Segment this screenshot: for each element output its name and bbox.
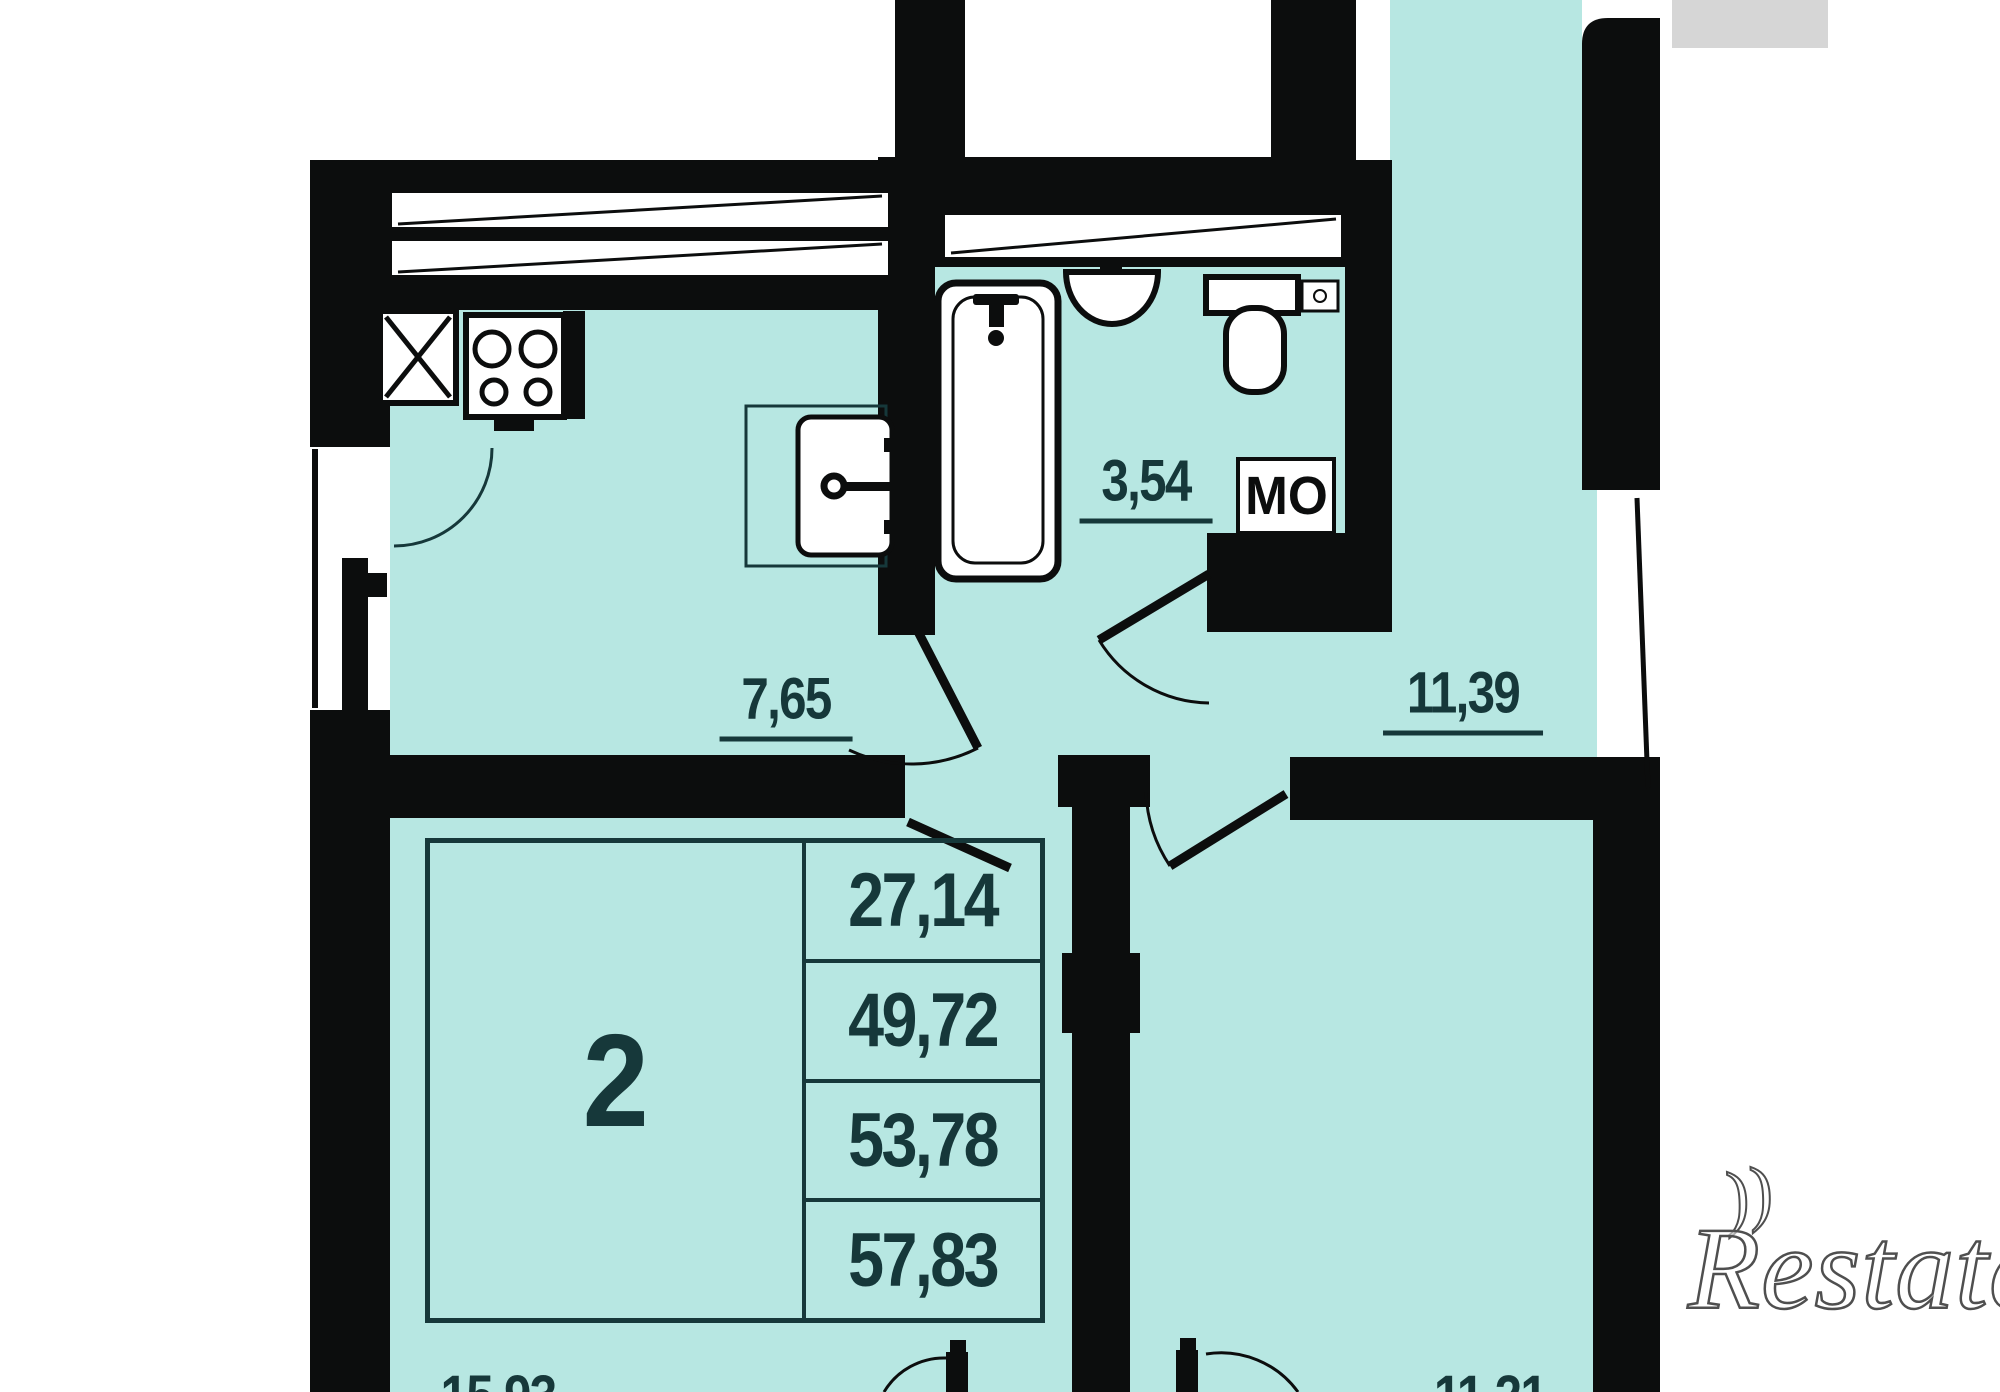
wall-hall-bedroom-divider	[1290, 757, 1660, 820]
wall-right-lower	[1593, 820, 1660, 1392]
kitchen-area-label: 7,65	[720, 671, 853, 742]
wall-bathroom-bottom	[1207, 533, 1392, 632]
washer-outline	[1302, 281, 1338, 311]
door-hinge	[950, 1340, 966, 1352]
bathroom-window-band	[945, 215, 1341, 257]
stove-outline	[466, 315, 564, 417]
wall-stub-a	[895, 0, 965, 162]
burner	[521, 332, 555, 366]
living-room-area-value: 15,93	[441, 1368, 556, 1392]
common-area-box: МО	[1236, 457, 1336, 535]
common-area-label: МО	[1245, 465, 1328, 527]
living-room-area-label: 15,93	[430, 1368, 565, 1392]
entry-door	[1637, 498, 1648, 788]
hallway-area-label: 11,39	[1383, 665, 1543, 736]
tub-drain	[988, 330, 1004, 346]
toilet-bowl	[1226, 308, 1284, 392]
stamp-area-row: 27,14	[806, 843, 1040, 963]
sink-tick	[884, 438, 893, 452]
stamp-area-value: 57,83	[849, 1217, 998, 1304]
stamp-area-row: 49,72	[806, 963, 1040, 1083]
wall-central-mid	[1062, 953, 1140, 1033]
door-leaf	[342, 558, 368, 710]
burner	[482, 380, 506, 404]
stamp-room-count-cell: 2	[430, 843, 806, 1318]
refrigerator-symbol	[380, 311, 456, 403]
wall-top-kitchen	[310, 160, 935, 310]
wall-stub-b	[1271, 0, 1356, 162]
hallway-area-value: 11,39	[1407, 665, 1519, 723]
door-leaf	[946, 1352, 968, 1392]
kitchen-sink-symbol	[798, 417, 893, 555]
neighbor-structure	[1672, 0, 1828, 48]
wall-central-cap	[1058, 755, 1150, 807]
door-handle	[365, 573, 387, 597]
kitchen-area-value: 7,65	[741, 671, 830, 729]
wall-kitchen-living-divider	[310, 755, 905, 818]
stove-tab	[494, 419, 534, 431]
wall-central-shaft	[1072, 805, 1130, 1392]
bathroom-area-label: 3,54	[1080, 453, 1213, 524]
washer-symbol	[1302, 281, 1338, 311]
tub-faucet-bar	[973, 294, 1019, 305]
stamp-area-value: 53,78	[849, 1097, 998, 1184]
stamp-areas-column: 27,14 49,72 53,78 57,83	[806, 843, 1040, 1318]
stamp-area-value: 27,14	[849, 857, 998, 944]
stamp-area-value: 49,72	[849, 977, 998, 1064]
burner	[475, 332, 509, 366]
bathtub-symbol	[938, 283, 1058, 579]
door-leaf	[1176, 1350, 1198, 1392]
door-hinge	[1180, 1338, 1196, 1350]
apartment-stamp-table: 2 27,14 49,72 53,78 57,83	[425, 838, 1045, 1323]
bedroom-area-value: 11,21	[1434, 1368, 1546, 1392]
stamp-room-count: 2	[583, 1005, 649, 1156]
bedroom-area-label: 11,21	[1424, 1368, 1556, 1392]
wall-right-upper	[1582, 18, 1660, 490]
faucet-stem	[840, 482, 890, 491]
door-leaf	[1637, 498, 1648, 788]
watermark-text: Restate	[1688, 1210, 2000, 1328]
outer-glazing-line	[312, 449, 318, 708]
corridor-floor-top	[1390, 0, 1582, 192]
tub-faucet-stem	[989, 305, 1004, 327]
stove-symbol	[466, 311, 585, 431]
tub-outline	[938, 283, 1058, 579]
faucet-knob	[824, 476, 844, 496]
bathroom-area-value: 3,54	[1101, 453, 1190, 511]
stamp-area-row: 57,83	[806, 1202, 1040, 1318]
stamp-area-row: 53,78	[806, 1083, 1040, 1203]
sink-tick	[884, 520, 893, 534]
floor-plan: 7,65 3,54 11,39 15,93 11,21 МО 2 27,14 4…	[0, 0, 2000, 1392]
burner	[526, 380, 550, 404]
